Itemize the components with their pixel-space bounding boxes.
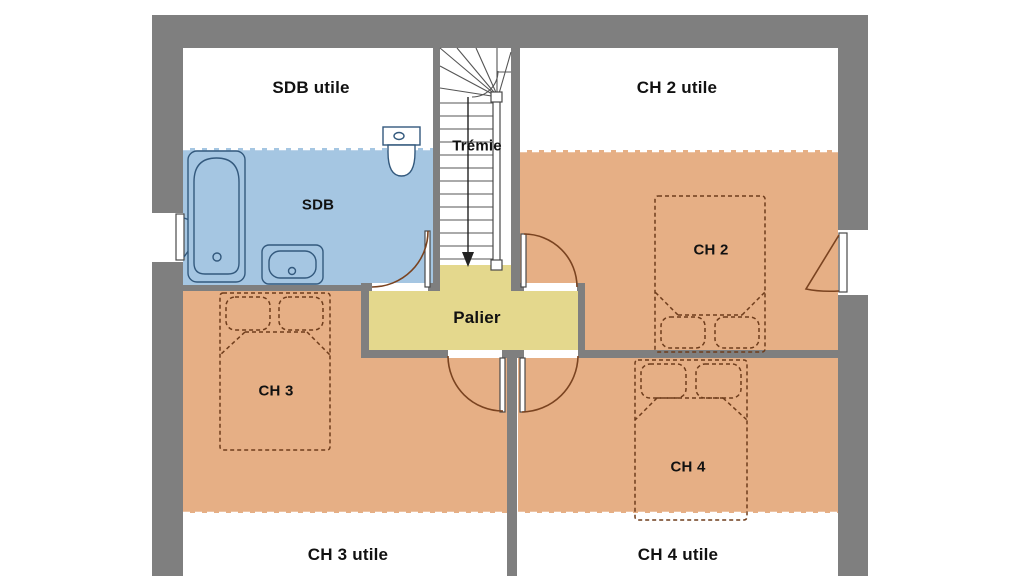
window-right xyxy=(806,230,868,295)
label-ch4-utile: CH 4 utile xyxy=(638,545,718,565)
toilet-tank xyxy=(383,127,420,145)
bed-ch2 xyxy=(655,196,765,352)
bed-pillow xyxy=(715,317,759,348)
bed-pillow xyxy=(641,364,686,398)
staircase xyxy=(440,48,511,270)
door-leaf xyxy=(521,234,526,287)
bed-sheet-fold xyxy=(220,332,330,355)
label-sdb-utile: SDB utile xyxy=(272,78,349,98)
label-ch4: CH 4 xyxy=(671,459,706,476)
door-leaf xyxy=(500,358,505,412)
door-arc xyxy=(448,356,503,411)
bed-sheet-fold xyxy=(655,292,765,315)
door-opening-ch4 xyxy=(524,350,578,358)
bed-ch3 xyxy=(220,293,330,450)
bed-frame xyxy=(635,360,747,520)
stair-newel-post xyxy=(491,92,502,102)
stair-winder-edges xyxy=(497,48,511,96)
washbasin xyxy=(262,245,323,284)
bathtub xyxy=(188,151,245,282)
stair-handrail xyxy=(493,96,500,266)
label-ch2: CH 2 xyxy=(694,242,729,259)
door-opening-ch2 xyxy=(524,283,577,291)
door-leaf xyxy=(520,358,525,412)
door-ch4 xyxy=(520,356,578,412)
door-opening-ch3 xyxy=(448,350,502,358)
stair-treads xyxy=(440,103,493,259)
floor-plan: SDB utile CH 2 utile Trémie SDB CH 2 Pal… xyxy=(0,0,1024,576)
bed-pillow xyxy=(226,297,270,330)
toilet-bowl xyxy=(388,145,415,176)
label-ch3: CH 3 xyxy=(259,383,294,400)
door-ch3 xyxy=(448,356,505,412)
bed-frame xyxy=(220,293,330,450)
window-frame xyxy=(176,214,184,260)
bed-pillow xyxy=(279,297,323,330)
door-arc xyxy=(372,231,428,287)
bed-sheet-fold xyxy=(635,398,747,420)
label-ch2-utile: CH 2 utile xyxy=(637,78,717,98)
window-casement xyxy=(806,235,839,291)
label-palier: Palier xyxy=(453,308,501,328)
bed-pillow xyxy=(661,317,705,348)
door-ch2 xyxy=(521,234,577,287)
toilet xyxy=(383,127,420,176)
label-tremie: Trémie xyxy=(452,138,502,155)
window-frame xyxy=(839,233,847,292)
label-ch3-utile: CH 3 utile xyxy=(308,545,388,565)
bed-pillow xyxy=(696,364,741,398)
bed-frame xyxy=(655,196,765,352)
bed-ch4 xyxy=(635,360,747,520)
stair-newel-post xyxy=(491,260,502,270)
door-arc xyxy=(522,356,578,412)
label-sdb: SDB xyxy=(302,197,334,214)
door-sdb xyxy=(372,231,430,287)
bathtub-outline xyxy=(188,151,245,282)
door-arc xyxy=(524,234,577,287)
